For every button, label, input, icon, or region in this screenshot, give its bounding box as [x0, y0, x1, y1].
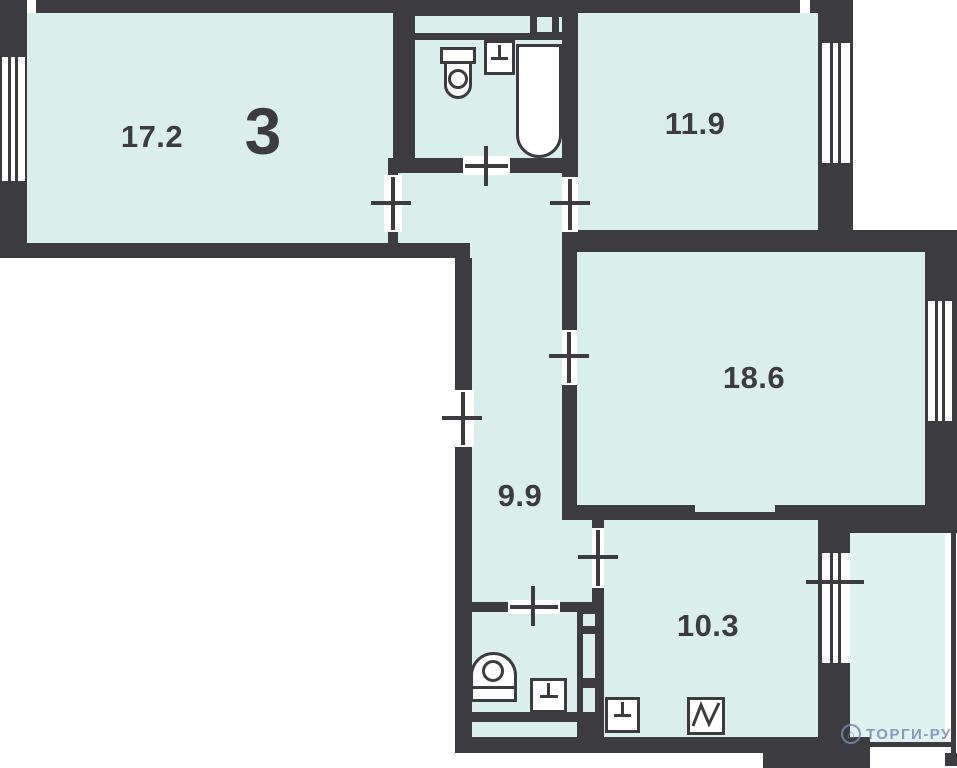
room-wc-lower-strip: [470, 722, 577, 737]
wall-balcony-top-band: [818, 505, 957, 533]
room-living-large: [27, 13, 393, 243]
wall-joint-notch: [800, 0, 810, 13]
duct-inset: [537, 17, 552, 32]
wall-bedroom-bottom: [562, 230, 957, 252]
wall-living-bottom: [0, 243, 470, 258]
wall-joint-notch: [27, 0, 36, 13]
floor-plan: 17.2 3 11.9 18.6 9.9 10.3 ⌂ ТОРГИ-РУ: [0, 0, 957, 768]
watermark-text: ТОРГИ-РУ: [866, 726, 952, 743]
area-label-bedroom: 11.9: [665, 106, 726, 142]
shaft-cell: [583, 688, 595, 712]
area-label-kitchen: 10.3: [677, 608, 739, 644]
wall-living-second-bottom: [562, 505, 818, 520]
duct-inset: [398, 16, 530, 33]
room-balcony: [850, 533, 945, 742]
wall-living-bathroom: [393, 13, 415, 158]
area-label-living-large: 17.2: [121, 119, 183, 155]
wall-top-right: [578, 0, 818, 13]
area-label-living-second: 18.6: [723, 360, 785, 396]
watermark-house-icon: ⌂: [841, 724, 861, 744]
shaft-cell: [583, 634, 595, 678]
wall-wc-bottom: [455, 712, 604, 722]
wall-top-left: [0, 0, 410, 13]
shaft-cell: [583, 614, 595, 626]
wall-outer-left-lower: [455, 258, 472, 737]
wall-niche: [695, 505, 775, 512]
area-label-hallway: 9.9: [498, 478, 543, 514]
wall-hallway-living-second: [562, 252, 577, 520]
rooms-count-label: 3: [245, 93, 282, 169]
wall-outer-bottom: [455, 737, 870, 753]
balcony-corner-block: [945, 753, 957, 766]
watermark: ⌂ ТОРГИ-РУ: [841, 724, 952, 744]
room-hallway-upper: [398, 173, 562, 243]
bathtub-icon: [516, 44, 562, 158]
wall-outer-bottom-step: [763, 753, 870, 768]
